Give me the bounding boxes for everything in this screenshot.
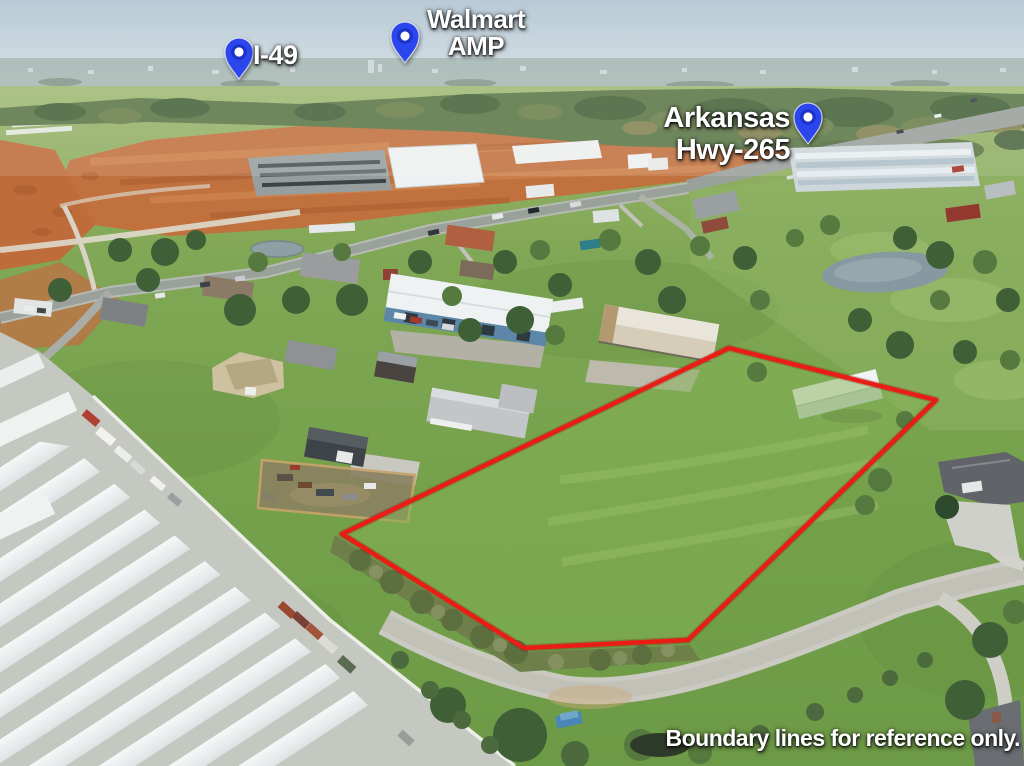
atmospheric-haze — [0, 86, 1024, 176]
aerial-photo: I-49 Walmart AMP Arkansas Hwy-265 Bounda… — [0, 0, 1024, 766]
aerial-photo-scene — [0, 0, 1024, 766]
boundary-disclaimer: Boundary lines for reference only. — [665, 725, 1020, 752]
